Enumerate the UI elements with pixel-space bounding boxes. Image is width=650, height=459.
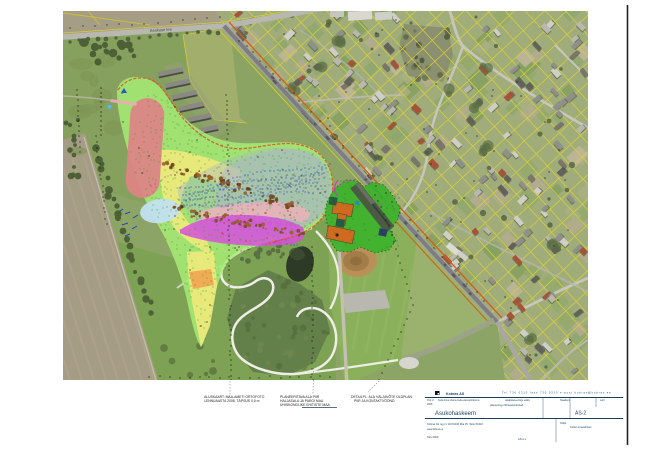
svg-text:Keila linna Lõuna-Keila elamup: Keila linna Lõuna-Keila elamupiirkonna — [438, 399, 480, 402]
svg-text:planeeringu lähteseisukohad: planeeringu lähteseisukohad — [490, 403, 524, 407]
svg-text:Asukohaskeem: Asukohaskeem — [435, 411, 476, 417]
svg-text:Leht: Leht — [600, 399, 605, 402]
svg-text:LENNUAASTA 2008, TÄPSUS 0,5 m: LENNUAASTA 2008, TÄPSUS 0,5 m — [204, 399, 260, 403]
svg-text:AS-2: AS-2 — [575, 411, 586, 417]
svg-text:Tel 730 0310 faks 730 0315 e: Tel 730 0310 faks 730 0315 e-post kobras… — [502, 391, 612, 395]
svg-text:Keila Linnavalitsus: Keila Linnavalitsus — [570, 425, 592, 429]
svg-text:PIIR JA KONTAKTVÖÖND: PIIR JA KONTAKTVÖÖND — [354, 399, 395, 403]
svg-text:ÜHISKONDLIKE EHITISTE MAA: ÜHISKONDLIKE EHITISTE MAA — [280, 403, 330, 407]
svg-text:Kobras AS: Kobras AS — [446, 392, 465, 396]
svg-text:Staadium: Staadium — [560, 399, 570, 402]
svg-text:detailplaneeringu eskiis: detailplaneeringu eskiis — [505, 399, 531, 402]
svg-text:www.kobras.ee: www.kobras.ee — [427, 428, 444, 431]
svg-text:AS-2-1: AS-2-1 — [518, 437, 527, 441]
svg-text:Tartu 2008: Tartu 2008 — [427, 436, 439, 439]
svg-text:Tellija:: Tellija: — [560, 422, 567, 425]
svg-text:Kobras AS reg nr 10171636 Ri: Kobras AS reg nr 10171636 Riia 35, Tartu… — [427, 422, 483, 426]
svg-text:Töö nr: Töö nr — [427, 399, 434, 402]
svg-text:2008: 2008 — [427, 403, 433, 406]
